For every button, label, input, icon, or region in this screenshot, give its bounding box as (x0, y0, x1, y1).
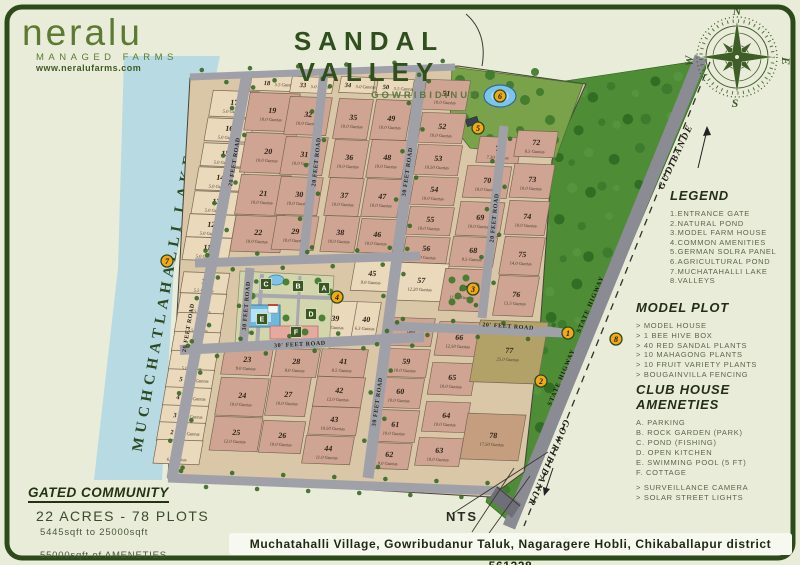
tree-icon (607, 82, 615, 90)
tree-icon (613, 185, 620, 192)
tree-icon (546, 312, 557, 323)
tree-icon (597, 181, 606, 190)
plot-size: 10.0 Guntas (421, 196, 444, 202)
tree-icon (221, 153, 226, 158)
tree-icon (640, 114, 651, 125)
plot-size: 10.0 Guntas (433, 422, 456, 428)
tree-icon (520, 95, 530, 105)
plot-number: 37 (339, 191, 349, 200)
tree-icon (572, 248, 581, 257)
tree-icon (463, 275, 470, 282)
stats-sqft-range: 5445sqft to 25000sqft (40, 527, 209, 538)
tree-icon (410, 343, 415, 348)
tree-icon (230, 471, 235, 476)
tree-icon (434, 479, 439, 484)
plot-27: 2710.0 Guntas (265, 375, 312, 416)
list-item: > MODEL HOUSE (636, 321, 796, 331)
tree-icon (502, 185, 507, 190)
tree-icon (585, 187, 596, 198)
list-item: > 40 RED SANDAL PLANTS (636, 341, 796, 351)
tree-icon (598, 119, 605, 126)
title-block: SANDAL VALLEY GOWRIBIDINUR (258, 26, 480, 101)
plot-size: 9.0 Guntas (377, 461, 398, 467)
tree-icon (400, 149, 405, 154)
plot-number: 49 (386, 114, 396, 123)
legend-title: LEGEND (670, 188, 796, 203)
tree-icon (467, 297, 474, 304)
plot-number: 55 (425, 215, 435, 224)
plot-number: 30 (294, 190, 304, 199)
tree-icon (230, 267, 235, 272)
list-item: 4.COMMON AMENITIES (670, 238, 796, 248)
list-item: 1.ENTRANCE GATE (670, 209, 796, 219)
plot-53: 5310.50 Guntas (413, 144, 462, 175)
plot-number: 52 (437, 122, 447, 131)
tree-icon (536, 88, 544, 96)
tree-icon (568, 159, 575, 166)
tree-icon (212, 201, 217, 206)
plot-number: 29 (290, 227, 300, 236)
brand-logo: neralu MANAGED FARMS www.neralufarms.com (22, 16, 178, 73)
plot-75: 7514.0 Guntas (499, 236, 546, 275)
plot-size: 10.50 Guntas (320, 426, 346, 432)
tree-icon (407, 224, 412, 229)
plot-number: 41 (338, 357, 348, 366)
stats-amenities-sqft: 55000sqft of AMENETIES (40, 550, 209, 561)
tree-icon (475, 335, 480, 340)
tree-icon (283, 315, 290, 322)
tree-icon (357, 491, 362, 496)
plot-size: 12.50 Guntas (445, 344, 471, 350)
tree-icon (287, 334, 292, 339)
plot-number: 65 (447, 373, 457, 382)
plot-number: 72 (531, 138, 541, 147)
plot-number: 54 (429, 185, 439, 194)
tree-icon (635, 143, 645, 153)
tree-icon (248, 66, 253, 71)
brand-tagline: MANAGED FARMS (36, 52, 178, 63)
tree-icon (298, 217, 303, 222)
plot-number: 45 (367, 269, 377, 278)
amenity-letter-F: F (294, 330, 299, 337)
plot-number: 57 (416, 276, 426, 285)
tree-icon (242, 133, 247, 138)
poster: MUCHCHATLAHALLI LAKE175.0 Guntas165.0 Gu… (0, 0, 800, 565)
tree-icon (623, 114, 634, 125)
plot-size: 10.0 Guntas (245, 239, 268, 245)
plot-24: 2410.0 Guntas (215, 377, 270, 416)
plot-52: 5210.0 Guntas (417, 112, 466, 143)
tree-icon (312, 349, 317, 354)
tree-icon (545, 115, 555, 125)
list-item: F. COTTAGE (636, 468, 798, 478)
plot-number: 62 (384, 450, 394, 459)
tree-icon (215, 354, 220, 359)
plot-size: 10.0 Guntas (374, 164, 397, 170)
plot-26: 2610.0 Guntas (258, 420, 306, 453)
plot-number: 20 (263, 147, 273, 156)
page-title: SANDAL VALLEY (258, 26, 480, 88)
tree-icon (551, 323, 556, 328)
plot-size: 10.0 Guntas (327, 239, 350, 245)
plot-number: 26 (277, 431, 287, 440)
plot-76: 7613.5 Guntas (493, 275, 540, 316)
tree-icon (674, 72, 683, 81)
plot-number: 61 (390, 420, 400, 429)
tree-icon (238, 336, 243, 341)
plot-number: 69 (475, 213, 485, 222)
plot-14: 145.0 Guntas (195, 167, 245, 191)
tree-icon (609, 154, 620, 165)
plot-number: 76 (511, 290, 521, 299)
plot-size: 12.0 Guntas (326, 397, 349, 403)
tree-icon (385, 329, 390, 334)
tree-icon (650, 76, 660, 86)
plot-size: 25.0 Guntas (496, 357, 519, 363)
plot-number: 63 (434, 446, 444, 455)
plot-36: 3610.0 Guntas (329, 140, 370, 179)
tree-icon (395, 320, 400, 325)
amenity-letter-D: D (308, 312, 313, 319)
tree-icon (179, 469, 184, 474)
plot-64: 6410.0 Guntas (421, 401, 470, 432)
marker-number-3: 3 (470, 285, 475, 294)
plot-number: 44 (323, 444, 333, 453)
tree-icon (255, 251, 260, 256)
tree-icon (283, 279, 290, 286)
model-plot-items: > MODEL HOUSE> 1 BEE HIVE BOX> 40 RED SA… (636, 321, 796, 380)
tree-icon (425, 333, 430, 338)
tree-icon (603, 247, 613, 257)
plot-number: 68 (468, 246, 478, 255)
plot-size: 10.0 Guntas (369, 203, 392, 209)
plot-72: 728.5 Guntas (514, 130, 559, 157)
tree-icon (405, 247, 410, 252)
list-item: E. SWIMMING POOL (5 FT) (636, 458, 798, 468)
marker-number-2: 2 (538, 377, 543, 386)
tree-icon (408, 493, 413, 498)
plot-74: 7410.0 Guntas (504, 200, 550, 235)
tree-icon (632, 90, 639, 97)
legend-items: 1.ENTRANCE GATE2.NATURAL POND3.MODEL FAR… (670, 209, 796, 286)
address-bar: Muchatahalli Village, Gowribudanur Taluk… (229, 533, 792, 555)
plot-55: 5510.0 Guntas (406, 206, 455, 235)
tree-icon (388, 368, 393, 373)
tree-icon (375, 342, 380, 347)
plot-size: 13.5 Guntas (503, 301, 526, 307)
club-house-items: A. PARKINGB. ROCK GARDEN (PARK)C. POND (… (636, 418, 798, 478)
tree-icon (281, 473, 286, 478)
plot-44: 4411.0 Guntas (302, 435, 355, 465)
plot-number: 56 (421, 244, 431, 253)
plot-41: 418.5 Guntas (318, 348, 369, 377)
tree-icon (545, 287, 555, 297)
amenity-letter-E: E (260, 317, 265, 324)
amenity-letter-C: C (263, 282, 268, 289)
tree-icon (254, 279, 259, 284)
compass-w: W (682, 54, 696, 66)
plot-size: 10.0 Guntas (259, 117, 282, 123)
tree-icon (485, 207, 490, 212)
tree-icon (362, 438, 367, 443)
plot-number: 59 (401, 357, 411, 366)
plot-number: 19 (267, 106, 277, 115)
brand-name: neralu (22, 16, 178, 50)
plot-size: 17.50 Guntas (479, 442, 505, 448)
plot-size: 8.5 Guntas (524, 149, 545, 155)
gated-community-stats: GATED COMMUNITY 22 ACRES - 78 PLOTS 5445… (28, 484, 209, 561)
tree-icon (531, 68, 539, 76)
tree-icon (578, 222, 586, 230)
list-item: D. OPEN KITCHEN (636, 448, 798, 458)
plot-size: 6.3 Guntas (354, 326, 375, 332)
nts-label: NTS (446, 509, 478, 524)
plot-number: 39 (330, 314, 340, 323)
plot-size: 10.0 Guntas (336, 164, 359, 170)
tree-icon (251, 85, 256, 90)
plot-number: 35 (348, 113, 358, 122)
plot-size: 8.0 Guntas (284, 368, 305, 374)
club-house-extras: > SURVEILLANCE CAMERA> SOLAR STREET LIGH… (636, 483, 798, 503)
tree-icon (224, 228, 229, 233)
tree-icon (574, 125, 584, 135)
tree-icon (189, 418, 194, 423)
plot-size: 10.0 Guntas (393, 368, 416, 374)
plot-size: 12.20 Guntas (407, 287, 433, 293)
tree-icon (381, 294, 386, 299)
plot-number: 78 (488, 431, 498, 440)
tree-icon (449, 299, 456, 306)
tree-icon (394, 197, 399, 202)
plot-size: 8.5 Guntas (331, 368, 352, 374)
tree-icon (177, 391, 182, 396)
tree-icon (336, 331, 341, 336)
club-house-title: CLUB HOUSE AMENETIES (636, 382, 798, 412)
tree-icon (401, 317, 406, 322)
tree-icon (508, 137, 513, 142)
plot-73: 7310.0 Guntas (509, 163, 555, 198)
tree-icon (567, 183, 577, 193)
plot-size: 10.0 Guntas (382, 431, 405, 437)
tree-icon (459, 495, 464, 500)
tree-icon (479, 255, 484, 260)
amenity-letter-B: B (295, 284, 300, 291)
plot-number: 60 (395, 387, 405, 396)
tree-icon (355, 248, 360, 253)
tree-icon (485, 481, 490, 486)
list-item: A. PARKING (636, 418, 798, 428)
tree-icon (584, 148, 593, 157)
tree-icon (207, 323, 212, 328)
plot-size: 10.0 Guntas (417, 226, 440, 232)
plot-size: 11.0 Guntas (315, 455, 338, 461)
tree-icon (255, 487, 260, 492)
tree-icon (280, 265, 285, 270)
plot-size: 9.0 Guntas (235, 366, 256, 372)
tree-icon (305, 250, 310, 255)
tree-icon (310, 245, 315, 250)
plot-number: 70 (482, 176, 492, 185)
list-item: 8.VALLEYS (670, 276, 796, 286)
compass-s: S (732, 96, 739, 110)
plot-43: 4310.50 Guntas (308, 406, 361, 436)
plot-number: 66 (454, 333, 464, 342)
tree-icon (401, 272, 406, 277)
plot-42: 4212.0 Guntas (312, 376, 365, 408)
tree-icon (224, 80, 229, 85)
tree-icon (554, 214, 564, 224)
tree-icon (380, 262, 385, 267)
plot-70: 7010.0 Guntas (462, 165, 512, 198)
plot-number: 36 (344, 153, 354, 162)
marker-number-4: 4 (334, 293, 339, 302)
page-subtitle: GOWRIBIDINUR (258, 90, 480, 101)
list-item: > 10 MAHAGONG PLANTS (636, 350, 796, 360)
plot-size: 10.0 Guntas (378, 125, 401, 131)
plot-size: 10.0 Guntas (364, 241, 387, 247)
tree-icon (382, 417, 387, 422)
tree-icon (485, 70, 495, 80)
plot-number: 48 (382, 153, 392, 162)
plot-size: 10.0 Guntas (229, 402, 252, 408)
tree-icon (200, 68, 205, 73)
list-item: > SURVEILLANCE CAMERA (636, 483, 798, 493)
tree-icon (319, 315, 326, 322)
plot-size: 10.0 Guntas (269, 442, 292, 448)
list-item: > SOLAR STREET LIGHTS (636, 493, 798, 503)
plot-28: 288.0 Guntas (272, 348, 321, 377)
plot-size: 9.0 Guntas (360, 280, 381, 286)
plot-size: 10.0 Guntas (255, 158, 278, 164)
list-item: 5.GERMAN SOLRA PANEL (670, 247, 796, 257)
tree-icon (449, 277, 456, 284)
plot-size: 10.0 Guntas (331, 202, 354, 208)
marker-number-8: 8 (614, 335, 618, 344)
plot-size: 10.0 Guntas (387, 398, 410, 404)
tree-icon (230, 106, 235, 111)
tree-icon (205, 253, 210, 258)
tree-icon (460, 285, 467, 292)
plot-number: 28 (291, 357, 301, 366)
stats-title: GATED COMMUNITY (28, 485, 169, 503)
gudibande-arrowhead-icon (703, 126, 711, 136)
tree-icon (407, 101, 412, 106)
amenity-letter-A: A (321, 286, 326, 293)
list-item: 3.MODEL FARM HOUSE (670, 228, 796, 238)
tree-icon (306, 489, 311, 494)
tree-icon (216, 275, 221, 280)
tree-icon (490, 159, 495, 164)
model-plot-title: MODEL PLOT (636, 300, 796, 315)
list-item: > 10 FRUIT VARIETY PLANTS (636, 360, 796, 370)
tree-icon (572, 279, 583, 290)
plot-number: 25 (231, 428, 241, 437)
plot-25: 2512.0 Guntas (209, 416, 263, 451)
plot-number: 47 (377, 192, 387, 201)
tree-icon (361, 346, 366, 351)
plot-38: 3810.0 Guntas (320, 216, 360, 253)
tree-icon (249, 331, 254, 336)
plot-number: 75 (517, 250, 527, 259)
plot-78: 7817.50 Guntas (460, 413, 526, 461)
list-item: > 1 BEE HIVE BOX (636, 331, 796, 341)
tree-icon (455, 293, 462, 300)
plot-number: 73 (527, 175, 537, 184)
brand-website: www.neralufarms.com (36, 63, 178, 73)
tree-icon (264, 351, 269, 356)
tree-icon (168, 439, 173, 444)
plot-number: 53 (433, 154, 443, 163)
tree-icon (588, 92, 598, 102)
plot-size: 10.0 Guntas (426, 457, 449, 463)
plot-number: 74 (522, 212, 532, 221)
plot-size: 10.0 Guntas (250, 200, 273, 206)
model-plot-panel: MODEL PLOT > MODEL HOUSE> 1 BEE HIVE BOX… (636, 300, 796, 380)
tree-icon (414, 175, 419, 180)
plot-number: 21 (258, 189, 268, 198)
list-item: C. POND (FISHING) (636, 438, 798, 448)
tree-icon (662, 84, 673, 95)
plot-size: 10.0 Guntas (340, 124, 363, 130)
tree-icon (387, 245, 392, 250)
plot-size: 10.0 Guntas (519, 186, 542, 192)
plot-size: 12.0 Guntas (223, 439, 246, 445)
tree-icon (203, 248, 208, 253)
tree-icon (330, 264, 335, 269)
list-item: > BOUGAINVILLA FENCING (636, 370, 796, 380)
gudibande-arrow (698, 130, 707, 168)
stats-acres-plots: 22 ACRES - 78 PLOTS (36, 508, 209, 524)
tree-icon (304, 163, 309, 168)
tree-icon (583, 251, 594, 262)
tree-icon (491, 281, 496, 286)
tree-icon (189, 339, 194, 344)
list-item: 6.AGRICULTURAL POND (670, 257, 796, 267)
plot-size: 14.0 Guntas (509, 261, 532, 267)
tree-icon (237, 304, 242, 309)
club-house-panel: CLUB HOUSE AMENETIES A. PARKINGB. ROCK G… (636, 382, 798, 503)
plot-number: 38 (335, 228, 345, 237)
plot-number: 27 (283, 390, 293, 399)
tree-icon (560, 255, 567, 262)
gowribidanur-arrowhead-icon (543, 487, 550, 496)
tree-icon (612, 120, 621, 129)
tree-icon (332, 475, 337, 480)
plot-number: 77 (504, 346, 514, 355)
tree-icon (420, 127, 425, 132)
marker-number-6: 6 (498, 92, 502, 101)
plot-number: 24 (237, 391, 247, 400)
plot-number: 46 (372, 230, 382, 239)
pool-house-shape (268, 305, 278, 313)
plot-number: 43 (329, 415, 339, 424)
tree-icon (310, 109, 315, 114)
plot-45: 459.0 Guntas (350, 258, 394, 291)
tree-icon (497, 233, 502, 238)
list-item: B. ROCK GARDEN (PARK) (636, 428, 798, 438)
tree-icon (451, 319, 456, 324)
compass-hub (735, 55, 739, 59)
tree-icon (383, 477, 388, 482)
tree-icon (302, 329, 309, 336)
marker-number-1: 1 (566, 329, 570, 338)
tree-icon (605, 212, 613, 220)
tree-icon (376, 465, 381, 470)
plot-number: 64 (441, 411, 451, 420)
plot-size: 10.0 Guntas (514, 223, 537, 229)
plot-48: 4810.0 Guntas (366, 139, 409, 178)
list-item: 2.NATURAL POND (670, 219, 796, 229)
